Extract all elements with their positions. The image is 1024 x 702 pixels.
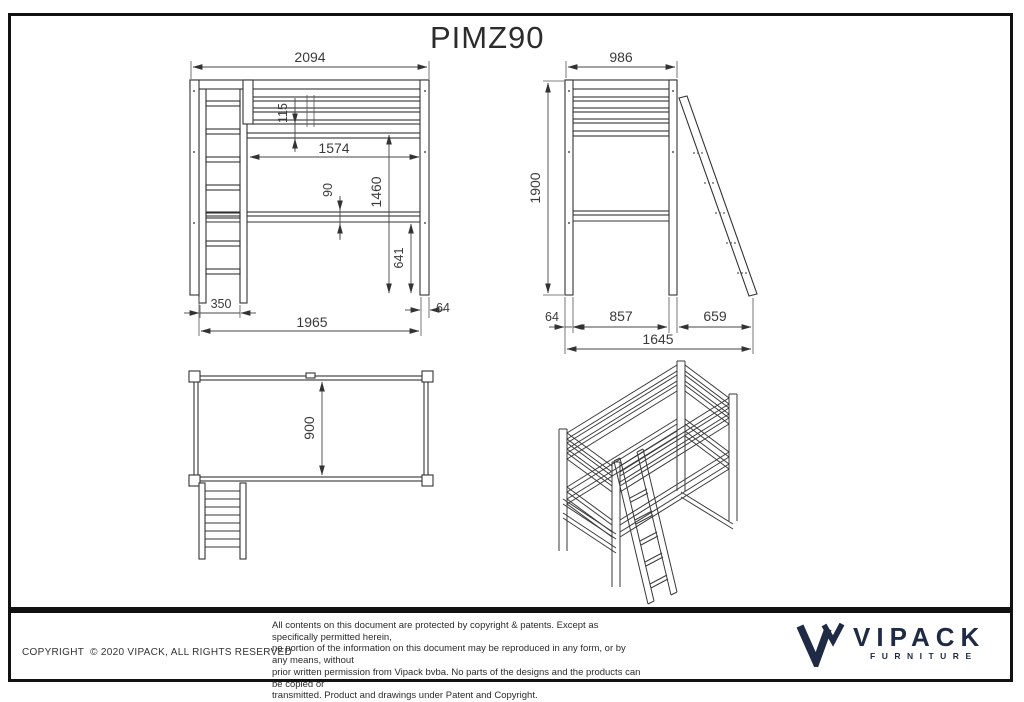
legal-line: prior written permission from Vipack bvb… (272, 667, 642, 690)
legal-line: no portion of the information on this do… (272, 643, 642, 666)
legal-line: All contents on this document are protec… (272, 620, 642, 643)
vipack-logo-icon (795, 621, 847, 667)
logo-brand: VIPACK (853, 624, 985, 650)
legal-line: transmitted. Product and drawings under … (272, 690, 642, 702)
legal-text: All contents on this document are protec… (272, 620, 642, 702)
page-title: PIMZ90 (430, 20, 545, 56)
sheet-border (8, 13, 1013, 610)
vipack-logo-text: VIPACK FURNITURE (853, 624, 985, 661)
logo-subtitle: FURNITURE (870, 651, 985, 661)
vipack-logo: VIPACK FURNITURE (795, 620, 1005, 670)
copyright-text: COPYRIGHT © 2020 VIPACK, ALL RIGHTS RESE… (22, 647, 292, 658)
